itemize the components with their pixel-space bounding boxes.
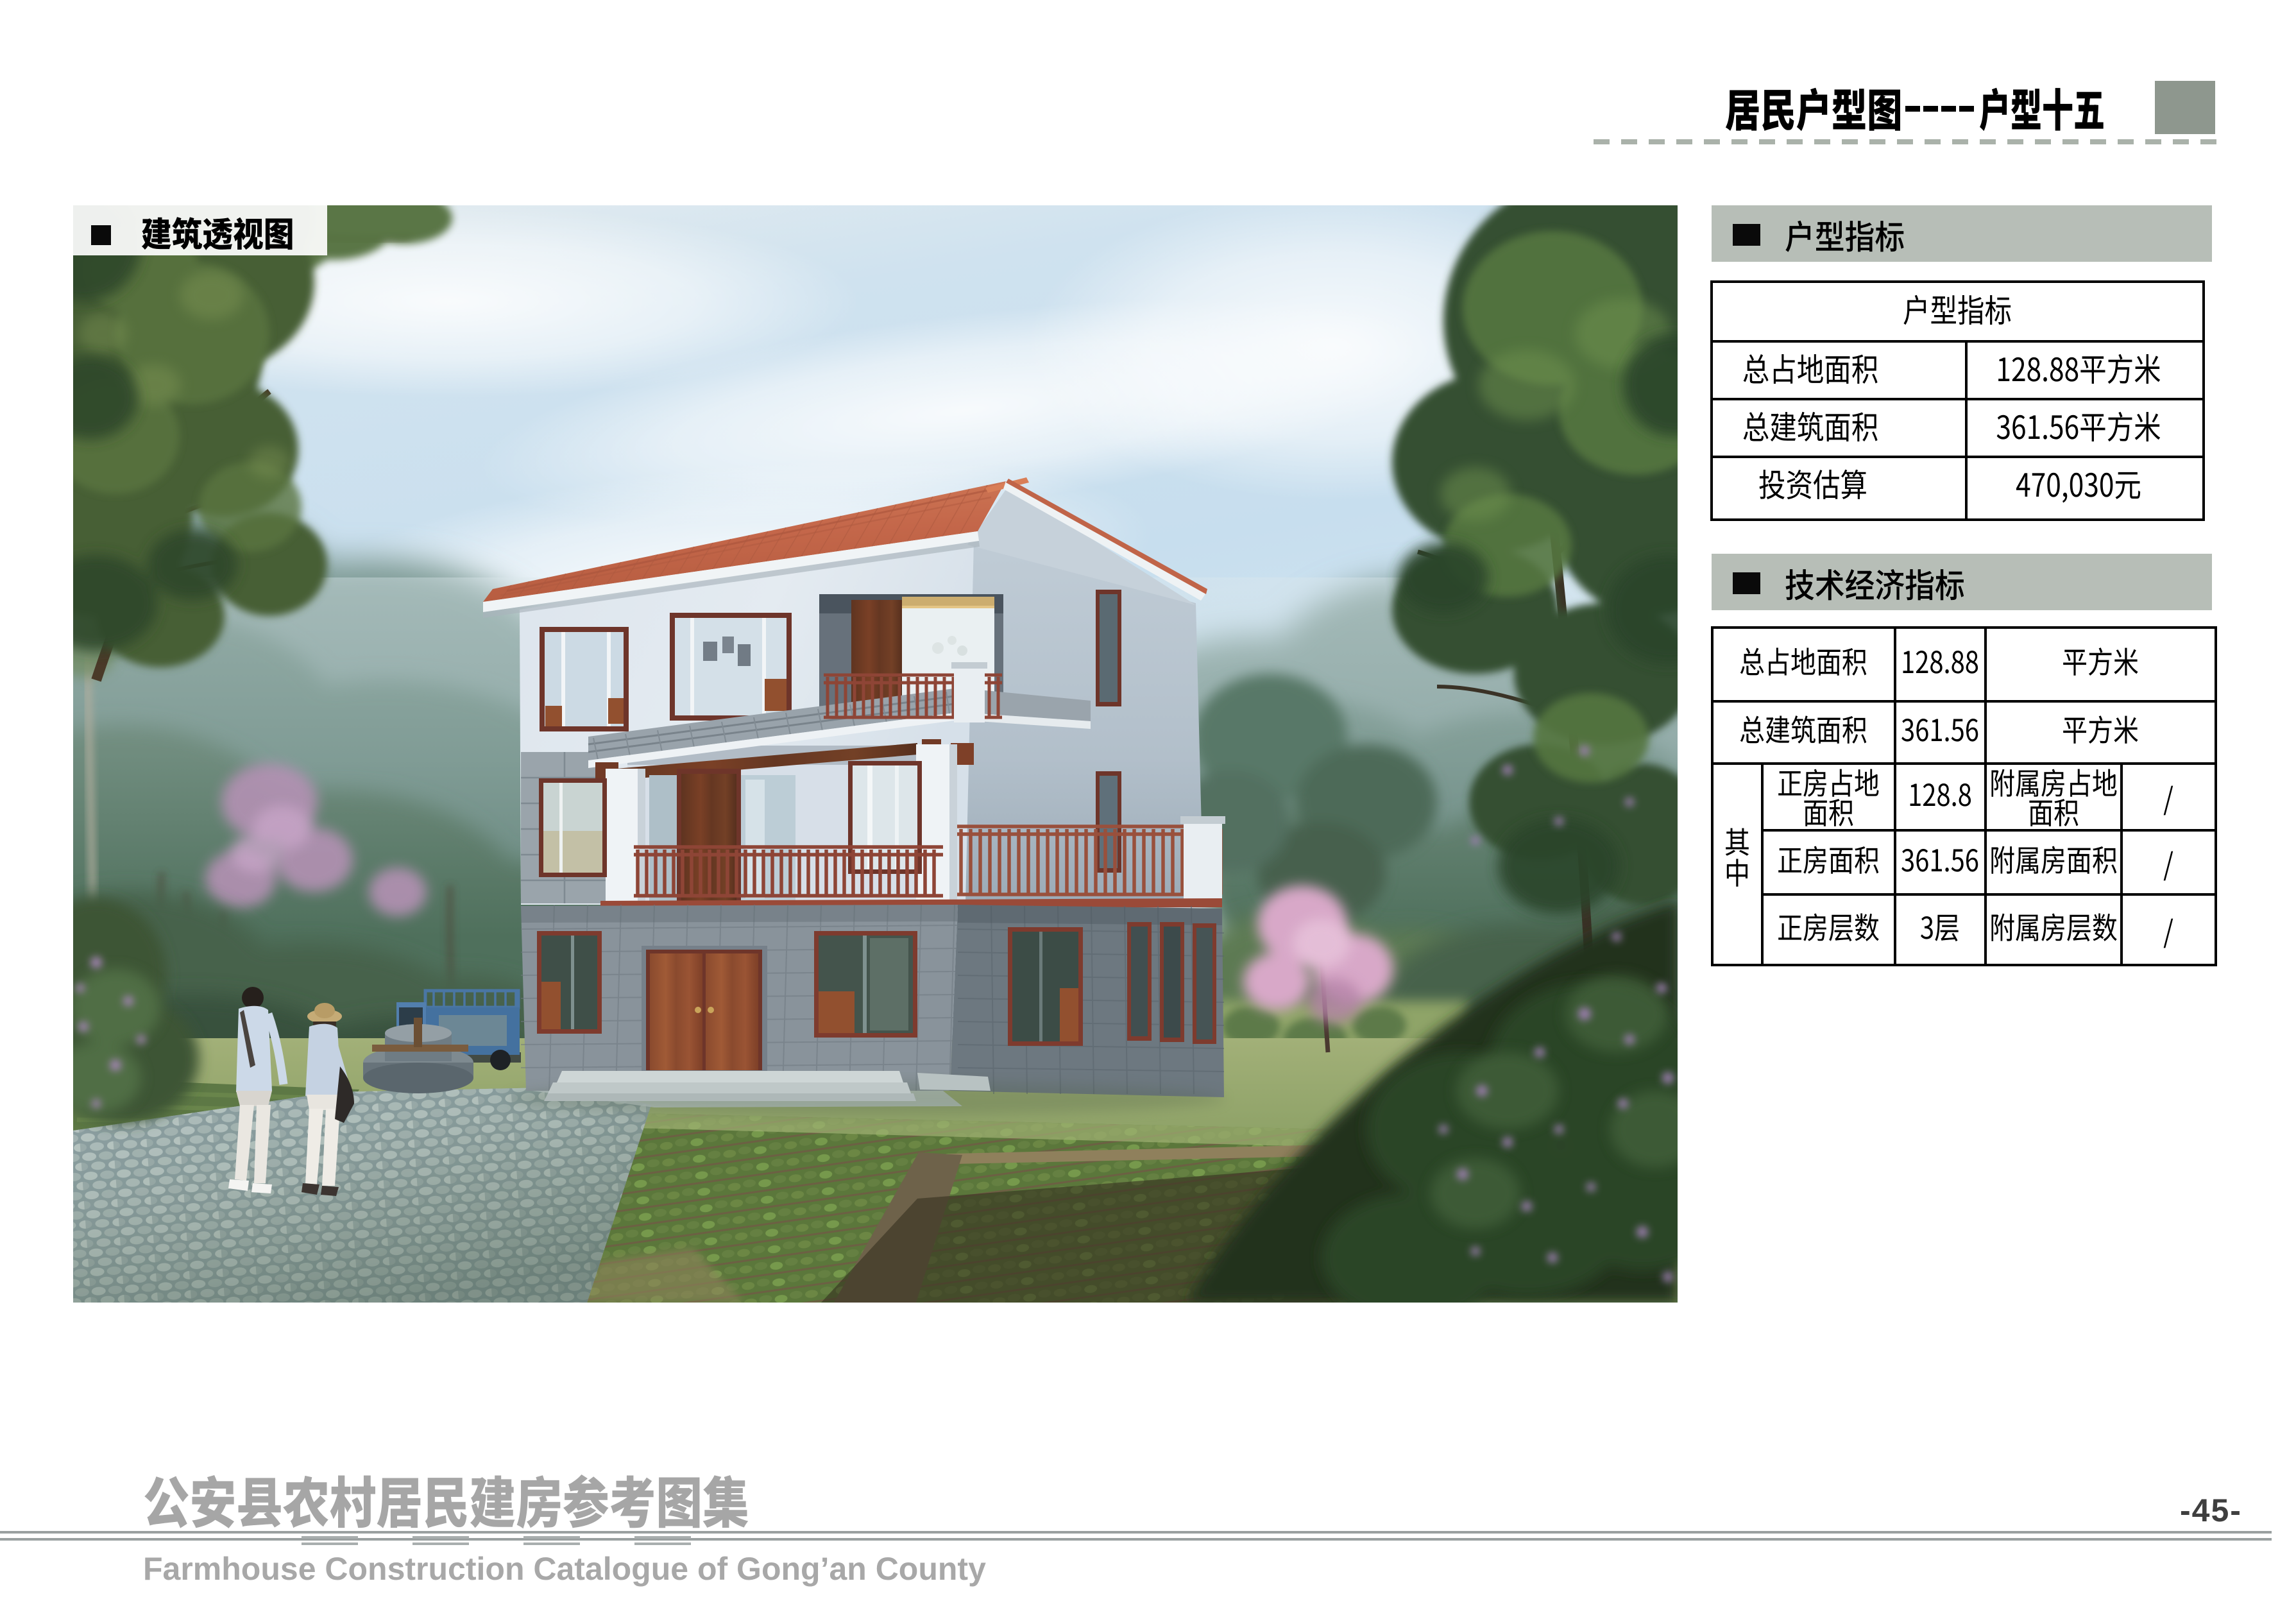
svg-text:-45-: -45-: [2180, 1492, 2242, 1528]
svg-text:Farmhouse Construction Catalog: Farmhouse Construction Catalogue of Gong…: [143, 1551, 986, 1587]
